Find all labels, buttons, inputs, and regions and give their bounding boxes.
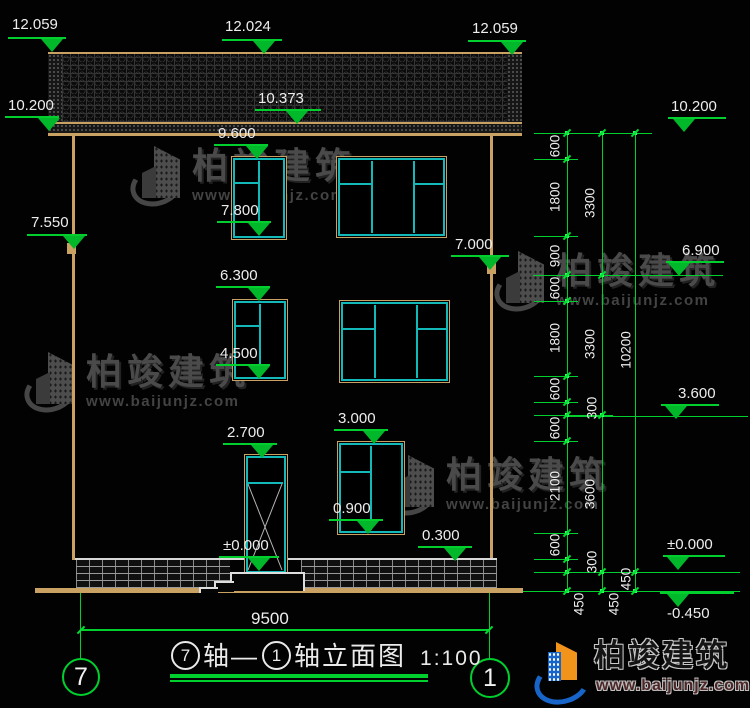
elevation-triangle-icon — [673, 119, 695, 132]
window-mullion — [371, 161, 373, 233]
dim-tick-line — [569, 275, 613, 276]
title-segment-a: 轴— — [203, 643, 259, 669]
dimension-value: 450 — [572, 593, 586, 616]
title-axis-circle-1: 1 — [262, 641, 291, 670]
axis-line-left — [80, 593, 81, 659]
window-mullion — [374, 305, 376, 378]
dimension-value: 600 — [548, 534, 562, 557]
dim-tick-line — [534, 236, 578, 237]
window-frame — [339, 300, 450, 383]
dim-tick-line — [602, 133, 646, 134]
window-transom — [236, 325, 260, 327]
watermark-brand-url: www.baijunjz.com — [446, 497, 599, 512]
window-transom — [414, 183, 443, 185]
dim-chain-line — [567, 133, 568, 591]
entry-platform — [230, 572, 305, 591]
elevation-value: 3.600 — [678, 386, 716, 401]
overall-dim-value: 9500 — [251, 609, 289, 629]
watermark-building-icon — [408, 455, 434, 507]
elevation-triangle-icon — [363, 431, 385, 444]
window-glass — [341, 302, 448, 381]
elevation-value: -0.450 — [667, 606, 710, 621]
elevation-triangle-icon — [444, 548, 466, 561]
dimension-value: 600 — [548, 135, 562, 158]
elevation-triangle-icon — [479, 257, 501, 270]
dimension-value: 3600 — [583, 479, 597, 509]
axis-bubble-7: 7 — [62, 658, 100, 696]
elevation-value: 10.200 — [671, 99, 717, 114]
elevation-triangle-icon — [251, 445, 273, 458]
wall-left — [72, 136, 75, 560]
dim-tick-line — [534, 402, 578, 403]
roof-tile-hatch — [62, 54, 507, 122]
elevation-triangle-icon — [248, 223, 270, 236]
elevation-triangle-icon — [286, 111, 308, 124]
elevation-value: 7.550 — [31, 215, 69, 230]
roof-right-band — [507, 54, 522, 122]
dimension-value: 450 — [607, 593, 621, 616]
window-transom — [235, 182, 259, 184]
brand-url: www.baijunjz.com — [596, 678, 750, 694]
elevation-value: 12.024 — [225, 19, 271, 34]
elevation-value: 0.300 — [422, 528, 460, 543]
elevation-value: ±0.000 — [223, 538, 269, 553]
title-underline-thin — [170, 680, 428, 682]
elevation-triangle-icon — [667, 557, 689, 570]
plinth-brick-left — [76, 560, 230, 588]
elevation-triangle-icon — [357, 521, 379, 534]
elevation-value: 10.200 — [8, 98, 54, 113]
dimension-value: 600 — [548, 378, 562, 401]
elevation-value: 12.059 — [12, 17, 58, 32]
dim-chain-line — [602, 133, 603, 591]
dimension-value: 10200 — [619, 331, 633, 369]
dim-tick-line — [534, 559, 578, 560]
watermark-building-icon — [48, 352, 74, 404]
window-frame — [336, 156, 447, 238]
elevation-triangle-icon — [248, 558, 270, 571]
elevation-value: 7.800 — [221, 203, 259, 218]
brand-name: 柏竣建筑 — [594, 640, 730, 671]
title-segment-b: 轴立面图 — [294, 643, 406, 669]
window-transom — [343, 328, 374, 330]
window-mullion — [413, 161, 415, 233]
dimension-value: 3300 — [583, 188, 597, 218]
elevation-value: 10.373 — [258, 91, 304, 106]
plinth-brick-right — [301, 560, 497, 588]
elevation-value: 6.300 — [220, 268, 258, 283]
dimension-value: 300 — [585, 397, 599, 420]
elevation-value: 2.700 — [227, 425, 265, 440]
dimension-value: 2100 — [548, 471, 562, 501]
window-transom — [417, 328, 446, 330]
elevation-triangle-icon — [253, 41, 275, 54]
elevation-value: 4.500 — [220, 346, 258, 361]
dimension-value: 600 — [548, 417, 562, 440]
elevation-triangle-icon — [38, 118, 60, 131]
title-underline-thick — [170, 674, 428, 678]
watermark-building-icon — [518, 251, 544, 303]
elevation-triangle-icon — [501, 42, 523, 55]
window-glass — [338, 158, 445, 236]
elevation-value: ±0.000 — [667, 537, 713, 552]
dimension-value: 300 — [585, 551, 599, 574]
elevation-value: 3.000 — [338, 411, 376, 426]
watermark-brand-url: www.baijunjz.com — [86, 394, 239, 409]
dim-tick-line — [534, 159, 578, 160]
axis-bubble-1-label: 1 — [483, 664, 497, 693]
wall-right — [490, 136, 493, 560]
window-transom — [340, 183, 371, 185]
window-transom — [341, 471, 371, 473]
dimension-value: 600 — [548, 277, 562, 300]
elevation-triangle-icon — [246, 146, 268, 159]
axis-bubble-7-label: 7 — [74, 663, 88, 692]
elevation-triangle-icon — [63, 236, 85, 249]
elevation-value: 6.900 — [682, 243, 720, 258]
elevation-triangle-icon — [668, 263, 690, 276]
drawing-title: 7 轴— 1 轴立面图 1:100 — [168, 640, 483, 671]
roof-eave-band — [48, 124, 522, 133]
window-mullion — [416, 305, 418, 378]
dimension-value: 900 — [548, 245, 562, 268]
elevation-value: 0.900 — [333, 501, 371, 516]
elevation-triangle-icon — [248, 366, 270, 379]
entry-step-1 — [199, 587, 218, 593]
title-scale: 1:100 — [420, 647, 483, 671]
dimension-value: 1800 — [548, 323, 562, 353]
elevation-triangle-icon — [41, 39, 63, 52]
elevation-drawing-canvas: 9500 7 1 7 轴— 1 轴立面图 1:100 柏竣建筑 www.baij… — [0, 0, 750, 708]
title-axis-circle-7: 7 — [171, 641, 200, 670]
elevation-value: 7.000 — [455, 237, 493, 252]
dimension-value: 1800 — [548, 182, 562, 212]
watermark-brand-url: www.baijunjz.com — [556, 293, 709, 308]
brand-logo-tower-icon — [548, 652, 561, 681]
dim-tick-line — [534, 441, 578, 442]
elevation-triangle-icon — [248, 288, 270, 301]
elevation-value: 9.600 — [218, 126, 256, 141]
elevation-value: 12.059 — [472, 21, 518, 36]
overall-dim-line — [80, 629, 490, 631]
window-mullion — [370, 446, 372, 530]
dimension-value: 3300 — [583, 329, 597, 359]
dimension-value: 450 — [619, 568, 633, 591]
dim-chain-line — [635, 133, 636, 591]
dim-tick-line — [534, 301, 578, 302]
roof-bottom-edge — [48, 133, 522, 136]
elevation-triangle-icon — [665, 406, 687, 419]
watermark-building-icon — [154, 146, 180, 198]
